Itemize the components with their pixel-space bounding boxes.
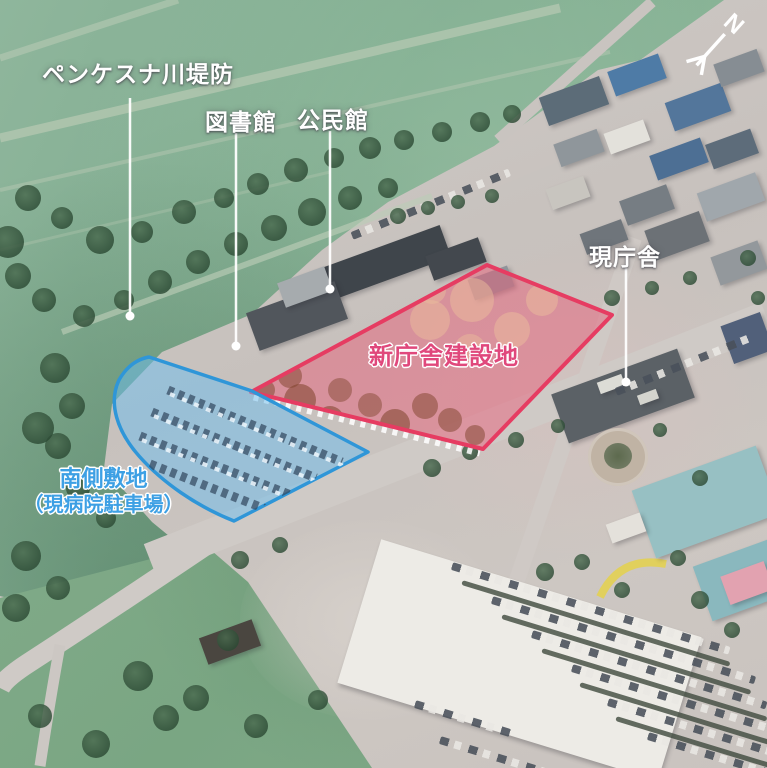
leader-dot bbox=[326, 285, 335, 294]
label-library: 図書館 bbox=[205, 103, 277, 137]
leader-dot bbox=[232, 342, 241, 351]
leader-dot bbox=[622, 378, 631, 387]
label-embankment: ペンケスナ川堤防 bbox=[42, 55, 234, 89]
leader-dot bbox=[126, 312, 135, 321]
label-south-site-line1: 南側敷地 bbox=[6, 466, 201, 493]
label-new-office-site: 新庁舎建設地 bbox=[369, 336, 519, 371]
aerial-photo: N ペンケスナ川堤防 図書館 公民館 現庁舎 新庁舎建設地 南側敷地 （現病院駐… bbox=[0, 0, 767, 768]
label-community-hall: 公民館 bbox=[297, 101, 369, 135]
label-current-office: 現庁舎 bbox=[589, 238, 661, 272]
north-arrow: N bbox=[686, 7, 750, 75]
annotation-overlay: N bbox=[0, 0, 767, 768]
label-south-site-line2: （現病院駐車場） bbox=[6, 493, 201, 517]
label-south-site: 南側敷地 （現病院駐車場） bbox=[6, 466, 201, 517]
